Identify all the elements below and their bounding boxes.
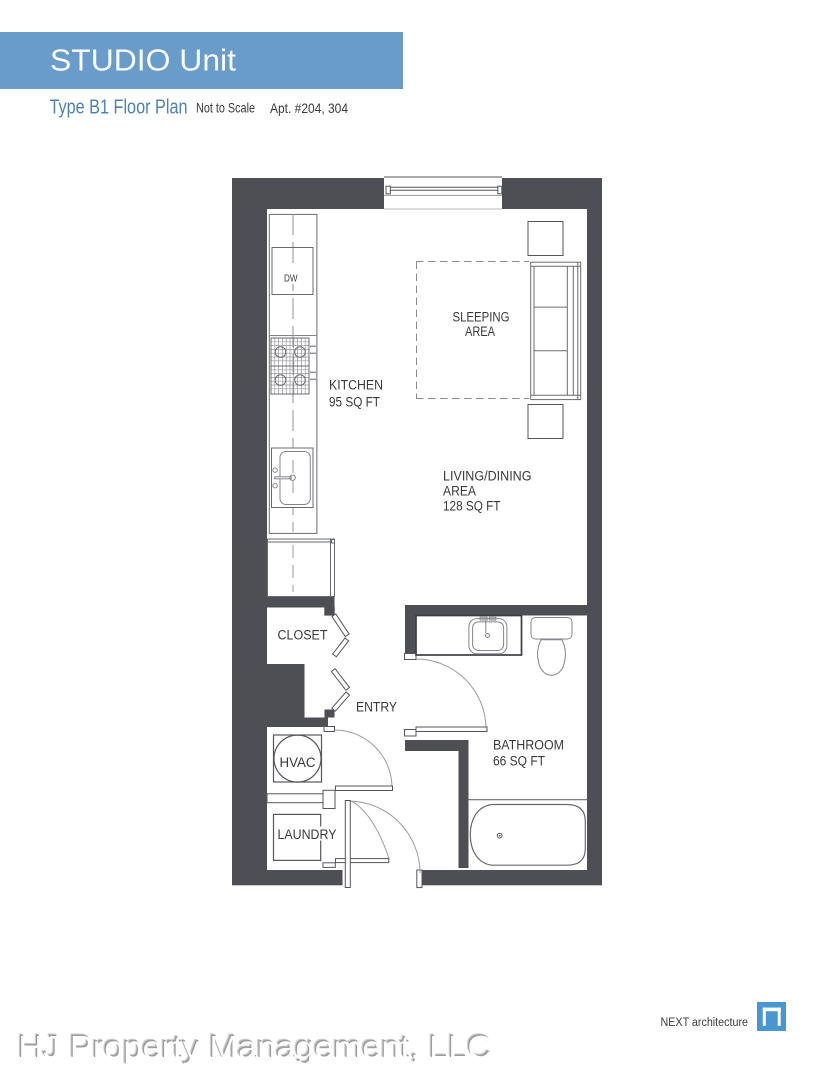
svg-text:DW: DW bbox=[284, 273, 298, 285]
svg-text:AREA: AREA bbox=[465, 324, 495, 339]
svg-text:66 SQ FT: 66 SQ FT bbox=[493, 754, 545, 769]
svg-text:LAUNDRY: LAUNDRY bbox=[278, 827, 337, 842]
svg-text:HJ Property Management, LLC: HJ Property Management, LLC bbox=[18, 1029, 492, 1065]
svg-text:SLEEPING: SLEEPING bbox=[453, 310, 510, 325]
svg-text:95 SQ FT: 95 SQ FT bbox=[329, 395, 380, 410]
svg-text:Apt. #204, 304: Apt. #204, 304 bbox=[270, 101, 348, 116]
svg-text:128 SQ FT: 128 SQ FT bbox=[443, 499, 501, 514]
svg-text:NEXT architecture: NEXT architecture bbox=[661, 1017, 749, 1029]
svg-text:HVAC: HVAC bbox=[280, 755, 316, 770]
svg-text:CLOSET: CLOSET bbox=[278, 628, 328, 643]
svg-text:LIVING/DINING: LIVING/DINING bbox=[443, 469, 532, 484]
svg-text:AREA: AREA bbox=[443, 484, 476, 499]
svg-text:KITCHEN: KITCHEN bbox=[329, 378, 383, 393]
svg-text:Not to Scale: Not to Scale bbox=[196, 101, 255, 116]
svg-text:Type B1 Floor Plan: Type B1 Floor Plan bbox=[50, 96, 188, 119]
svg-text:STUDIO Unit: STUDIO Unit bbox=[50, 43, 236, 78]
svg-text:ENTRY: ENTRY bbox=[356, 700, 397, 715]
svg-text:BATHROOM: BATHROOM bbox=[493, 738, 564, 753]
